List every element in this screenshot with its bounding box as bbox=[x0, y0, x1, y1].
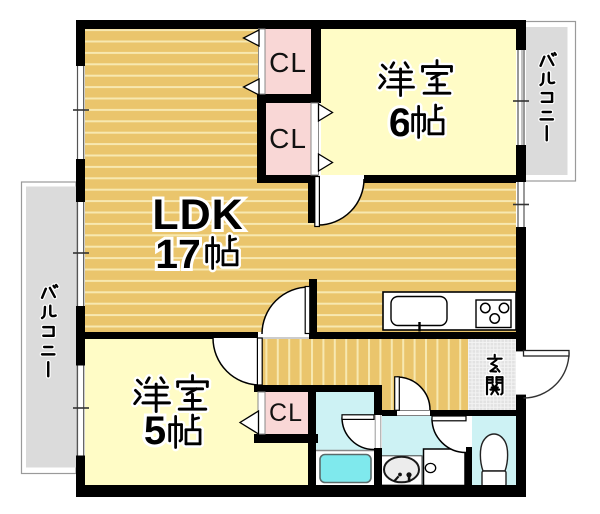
svg-text:6: 6 bbox=[389, 101, 411, 145]
svg-text:17: 17 bbox=[155, 231, 201, 277]
svg-text:CL: CL bbox=[269, 123, 307, 154]
svg-text:CL: CL bbox=[269, 47, 307, 78]
svg-text:5: 5 bbox=[144, 409, 166, 453]
svg-text:CL: CL bbox=[269, 399, 303, 427]
